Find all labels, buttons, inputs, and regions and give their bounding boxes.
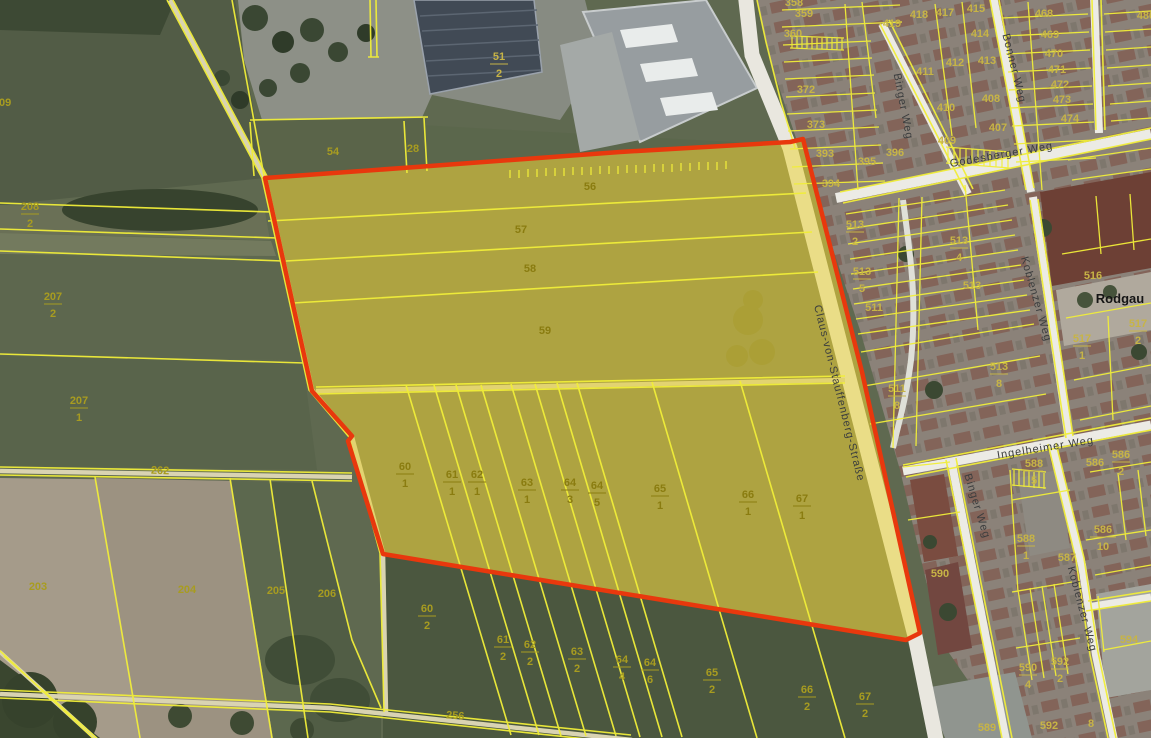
svg-text:2: 2 bbox=[1057, 673, 1063, 685]
tree-patch bbox=[265, 635, 335, 685]
svg-text:204: 204 bbox=[178, 584, 197, 596]
svg-text:60: 60 bbox=[399, 461, 411, 473]
parcel-label: 469 bbox=[1041, 29, 1059, 41]
parcel-label: 471 bbox=[1048, 64, 1066, 76]
parcel-label: 415 bbox=[967, 3, 985, 15]
svg-text:64: 64 bbox=[644, 657, 657, 669]
svg-text:5: 5 bbox=[1031, 475, 1037, 487]
svg-text:359: 359 bbox=[795, 8, 813, 20]
svg-text:1: 1 bbox=[449, 486, 455, 498]
svg-text:394: 394 bbox=[822, 178, 841, 190]
svg-text:58: 58 bbox=[524, 263, 536, 275]
svg-text:205: 205 bbox=[267, 585, 285, 597]
parcel-label: 57 bbox=[515, 224, 527, 236]
parcel-label: 56 bbox=[584, 181, 596, 193]
svg-text:471: 471 bbox=[1048, 64, 1066, 76]
parcel-label: 511 bbox=[865, 302, 883, 314]
tree bbox=[357, 24, 375, 42]
parcel-label: 417 bbox=[936, 7, 954, 19]
parcel-label: 513 bbox=[963, 280, 981, 292]
parcel-label: 474 bbox=[1061, 113, 1080, 125]
field-207-1 bbox=[0, 356, 317, 470]
svg-text:511: 511 bbox=[865, 302, 883, 314]
tree bbox=[230, 711, 254, 735]
svg-text:2: 2 bbox=[1135, 335, 1141, 347]
svg-text:413: 413 bbox=[978, 55, 996, 67]
parcel-label: 473 bbox=[1053, 94, 1071, 106]
svg-text:480: 480 bbox=[1137, 10, 1151, 22]
tree bbox=[168, 704, 192, 728]
svg-text:66: 66 bbox=[801, 684, 813, 696]
svg-text:8: 8 bbox=[894, 400, 900, 412]
svg-text:64: 64 bbox=[591, 480, 604, 492]
parcel-label: 28 bbox=[407, 143, 419, 155]
svg-text:56: 56 bbox=[584, 181, 596, 193]
svg-text:1: 1 bbox=[76, 412, 82, 424]
svg-text:1: 1 bbox=[1079, 350, 1085, 362]
svg-text:54: 54 bbox=[327, 146, 340, 158]
parcel-label: 408 bbox=[982, 93, 1000, 105]
svg-text:513: 513 bbox=[950, 235, 968, 247]
svg-text:586: 586 bbox=[1094, 524, 1112, 536]
tree bbox=[242, 5, 268, 31]
tree bbox=[1077, 292, 1093, 308]
svg-text:63: 63 bbox=[571, 646, 583, 658]
svg-text:61: 61 bbox=[497, 634, 509, 646]
svg-text:408: 408 bbox=[982, 93, 1000, 105]
svg-text:60: 60 bbox=[421, 603, 433, 615]
svg-text:59: 59 bbox=[539, 325, 551, 337]
parcel-label: 394 bbox=[822, 178, 841, 190]
svg-text:414: 414 bbox=[971, 28, 990, 40]
svg-text:409: 409 bbox=[938, 135, 956, 147]
svg-text:513: 513 bbox=[853, 266, 871, 278]
svg-text:513: 513 bbox=[990, 361, 1008, 373]
svg-text:474: 474 bbox=[1061, 113, 1080, 125]
tree bbox=[231, 91, 249, 109]
svg-text:65: 65 bbox=[706, 667, 718, 679]
svg-text:6: 6 bbox=[647, 674, 653, 686]
svg-text:2: 2 bbox=[27, 218, 33, 230]
svg-text:469: 469 bbox=[1041, 29, 1059, 41]
parcel-label: 587 bbox=[1058, 552, 1076, 564]
svg-text:373: 373 bbox=[807, 119, 825, 131]
parcel-label: 359 bbox=[795, 8, 813, 20]
svg-text:417: 417 bbox=[936, 7, 954, 19]
parcel-label: 413 bbox=[978, 55, 996, 67]
svg-text:2: 2 bbox=[852, 236, 858, 248]
svg-text:2: 2 bbox=[709, 684, 715, 696]
parcel-label: 203 bbox=[29, 581, 47, 593]
parcel-label: 480 bbox=[1137, 10, 1151, 22]
parcel-label: 516 bbox=[1084, 270, 1102, 282]
parcel-label: 360 bbox=[784, 28, 802, 40]
svg-text:516: 516 bbox=[1084, 270, 1102, 282]
parcel-label: 206 bbox=[318, 588, 336, 600]
svg-text:513: 513 bbox=[846, 219, 864, 231]
svg-text:5: 5 bbox=[594, 497, 600, 509]
svg-text:372: 372 bbox=[797, 84, 815, 96]
tree bbox=[925, 381, 943, 399]
parcel-label: 256 bbox=[446, 709, 465, 722]
svg-text:8: 8 bbox=[996, 378, 1002, 390]
svg-text:5: 5 bbox=[859, 283, 865, 295]
svg-text:208: 208 bbox=[21, 201, 39, 213]
parcel-label: 204 bbox=[178, 584, 197, 596]
tree-band-top-left bbox=[0, 0, 175, 35]
parcel-label: 592 bbox=[1040, 720, 1058, 732]
svg-text:67: 67 bbox=[859, 691, 871, 703]
tree bbox=[290, 63, 310, 83]
svg-text:2: 2 bbox=[424, 620, 430, 632]
svg-text:1: 1 bbox=[799, 510, 805, 522]
parcel-label: 396 bbox=[886, 147, 904, 159]
parcel-label: 589 bbox=[978, 722, 996, 734]
svg-text:393: 393 bbox=[816, 148, 834, 160]
parcel-label: 59 bbox=[539, 325, 551, 337]
svg-text:203: 203 bbox=[29, 581, 47, 593]
svg-text:407: 407 bbox=[989, 122, 1007, 134]
svg-text:588: 588 bbox=[1017, 533, 1035, 545]
svg-text:586: 586 bbox=[1112, 449, 1130, 461]
place-label: Rodgau bbox=[1096, 291, 1144, 306]
tree bbox=[300, 18, 324, 42]
parcel-label: 468 bbox=[1035, 8, 1053, 20]
svg-text:411: 411 bbox=[916, 66, 934, 78]
svg-text:3: 3 bbox=[567, 494, 573, 506]
svg-text:419: 419 bbox=[883, 18, 901, 30]
tree bbox=[272, 31, 294, 53]
parcel-label: 54 bbox=[327, 146, 340, 158]
svg-text:207: 207 bbox=[44, 291, 62, 303]
parcel-label: 372 bbox=[797, 84, 815, 96]
parcel-label: 412 bbox=[946, 57, 964, 69]
svg-text:1: 1 bbox=[1023, 550, 1029, 562]
svg-text:2: 2 bbox=[862, 708, 868, 720]
svg-text:1: 1 bbox=[474, 486, 480, 498]
svg-text:1: 1 bbox=[402, 478, 408, 490]
svg-text:594: 594 bbox=[1120, 634, 1139, 646]
parcel-label: 470 bbox=[1045, 48, 1063, 60]
svg-text:412: 412 bbox=[946, 57, 964, 69]
svg-text:4: 4 bbox=[956, 252, 963, 264]
svg-text:65: 65 bbox=[654, 483, 666, 495]
map-svg: 2092082207220712622032042052065428512256… bbox=[0, 0, 1151, 738]
svg-text:2: 2 bbox=[500, 651, 506, 663]
svg-text:256: 256 bbox=[446, 709, 465, 722]
parcel-label: 411 bbox=[916, 66, 934, 78]
svg-text:2: 2 bbox=[804, 701, 810, 713]
svg-text:67: 67 bbox=[796, 493, 808, 505]
svg-text:468: 468 bbox=[1035, 8, 1053, 20]
svg-text:418: 418 bbox=[910, 9, 928, 21]
svg-text:592: 592 bbox=[1040, 720, 1058, 732]
svg-text:2: 2 bbox=[574, 663, 580, 675]
svg-text:64: 64 bbox=[616, 654, 629, 666]
parcel-label: 594 bbox=[1120, 634, 1139, 646]
field-207-2 bbox=[0, 254, 303, 360]
parcel-label: 262 bbox=[151, 465, 170, 478]
svg-text:4: 4 bbox=[1025, 679, 1032, 691]
parcel-label: 407 bbox=[989, 122, 1007, 134]
svg-text:410: 410 bbox=[937, 102, 955, 114]
svg-text:517: 517 bbox=[1129, 318, 1147, 330]
svg-text:62: 62 bbox=[471, 469, 483, 481]
svg-text:209: 209 bbox=[0, 97, 11, 109]
parcel-label: 8 bbox=[1088, 718, 1094, 730]
svg-text:207: 207 bbox=[70, 395, 88, 407]
parcel-label: 373 bbox=[807, 119, 825, 131]
svg-text:415: 415 bbox=[967, 3, 985, 15]
parcel-label: 409 bbox=[938, 135, 956, 147]
parcel-label: 418 bbox=[910, 9, 928, 21]
svg-text:517: 517 bbox=[1073, 333, 1091, 345]
parcel-label: 58 bbox=[524, 263, 536, 275]
svg-text:10: 10 bbox=[1097, 541, 1109, 553]
parcel-label: 209 bbox=[0, 97, 11, 109]
tree bbox=[923, 535, 937, 549]
svg-text:262: 262 bbox=[151, 465, 170, 478]
svg-text:513: 513 bbox=[963, 280, 981, 292]
parcel-label: 205 bbox=[267, 585, 285, 597]
svg-text:1: 1 bbox=[524, 494, 530, 506]
parcel-label: 419 bbox=[883, 18, 901, 30]
svg-text:2: 2 bbox=[50, 308, 56, 320]
tree bbox=[328, 42, 348, 62]
svg-text:2: 2 bbox=[527, 656, 533, 668]
svg-text:360: 360 bbox=[784, 28, 802, 40]
apartment-block bbox=[1040, 172, 1151, 286]
svg-text:395: 395 bbox=[858, 156, 876, 168]
parcel-label: 410 bbox=[937, 102, 955, 114]
svg-text:396: 396 bbox=[886, 147, 904, 159]
svg-text:4: 4 bbox=[619, 671, 626, 683]
svg-text:51: 51 bbox=[493, 51, 505, 63]
svg-text:473: 473 bbox=[1053, 94, 1071, 106]
svg-text:206: 206 bbox=[318, 588, 336, 600]
svg-text:66: 66 bbox=[742, 489, 754, 501]
svg-text:470: 470 bbox=[1045, 48, 1063, 60]
svg-text:1: 1 bbox=[657, 500, 663, 512]
svg-text:62: 62 bbox=[524, 639, 536, 651]
svg-text:1: 1 bbox=[745, 506, 751, 518]
svg-text:587: 587 bbox=[1058, 552, 1076, 564]
svg-text:586: 586 bbox=[1086, 457, 1104, 469]
parcel-label: 472 bbox=[1051, 79, 1069, 91]
tree bbox=[939, 603, 957, 621]
svg-text:589: 589 bbox=[978, 722, 996, 734]
parcel-label: 586 bbox=[1086, 457, 1104, 469]
parcel-label: 393 bbox=[816, 148, 834, 160]
svg-text:8: 8 bbox=[1088, 718, 1094, 730]
svg-text:28: 28 bbox=[407, 143, 419, 155]
parcel-label: 395 bbox=[858, 156, 876, 168]
svg-text:590: 590 bbox=[931, 568, 949, 580]
tree bbox=[259, 79, 277, 97]
svg-text:57: 57 bbox=[515, 224, 527, 236]
svg-text:472: 472 bbox=[1051, 79, 1069, 91]
svg-text:63: 63 bbox=[521, 477, 533, 489]
parcel-label: 414 bbox=[971, 28, 990, 40]
svg-text:511: 511 bbox=[888, 383, 906, 395]
svg-text:590: 590 bbox=[1019, 662, 1037, 674]
svg-text:64: 64 bbox=[564, 477, 577, 489]
svg-text:2: 2 bbox=[1118, 466, 1124, 478]
svg-text:61: 61 bbox=[446, 469, 458, 481]
map-canvas[interactable]: 2092082207220712622032042052065428512256… bbox=[0, 0, 1151, 738]
svg-text:588: 588 bbox=[1025, 458, 1043, 470]
parcel-label: 590 bbox=[931, 568, 949, 580]
svg-text:592: 592 bbox=[1051, 656, 1069, 668]
svg-text:2: 2 bbox=[496, 68, 502, 80]
